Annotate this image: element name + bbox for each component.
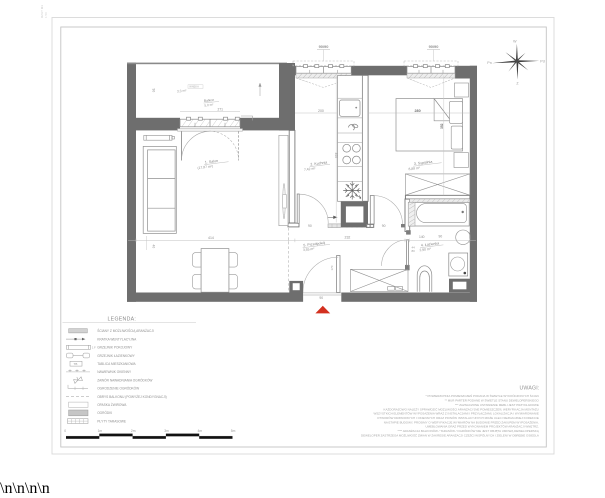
svg-text:1:50: 1:50 <box>44 12 48 18</box>
svg-text:UMEBLOWANIA ORAZ PRZED WYKONAN: UMEBLOWANIA ORAZ PRZED WYKONANIEM PROJEK… <box>425 424 539 429</box>
svg-text:*** ZAZNACZONE USTAWIENIE MEBL: *** ZAZNACZONE USTAWIENIE MEBLI JEST PRZ… <box>455 403 539 407</box>
svg-text:140: 140 <box>419 235 425 239</box>
svg-text:Pn: Pn <box>487 61 491 65</box>
svg-text:DEWELOPER ZASTRZEGA MOŻLIWOŚĆ: DEWELOPER ZASTRZEGA MOŻLIWOŚĆ ZMIAN W ZA… <box>361 432 539 437</box>
svg-text:0: 0 <box>64 429 66 433</box>
svg-text:WNĘKA: WNĘKA <box>189 85 199 89</box>
svg-text:W: W <box>513 40 517 44</box>
svg-text:NA ETAPIE BUDOWY, PROSIMY O WE: NA ETAPIE BUDOWY, PROSIMY O WERYFIKACJĘ … <box>384 419 539 424</box>
svg-text:90: 90 <box>308 224 312 228</box>
svg-text:414: 414 <box>208 236 214 240</box>
svg-text:UWAGI:: UWAGI: <box>519 385 539 391</box>
svg-text:KRATKA WENTYLACYJNA: KRATKA WENTYLACYJNA <box>97 337 137 341</box>
svg-text:5m: 5m <box>231 429 236 433</box>
svg-text:OBRYS BALKONU (POWYŻEJ KONDYGN: OBRYS BALKONU (POWYŻEJ KONDYGNACJI) <box>97 394 167 399</box>
svg-text:170: 170 <box>330 265 334 270</box>
svg-text:1m: 1m <box>98 429 103 433</box>
svg-text:4m: 4m <box>198 429 203 433</box>
svg-text:OGRODZENIE OGRÓDKÓW: OGRODZENIE OGRÓDKÓW <box>97 386 139 391</box>
svg-text:PŁYTY TARASOWE: PŁYTY TARASOWE <box>97 419 126 423</box>
svg-text:TB: TB <box>74 362 78 366</box>
svg-text:90/90: 90/90 <box>429 44 439 49</box>
svg-text:ZAWÓR NAWADNIANIA OGRÓDKÓW: ZAWÓR NAWADNIANIA OGRÓDKÓW <box>97 377 152 382</box>
svg-text:400: 400 <box>334 153 338 159</box>
svg-text:1 F: 1 F <box>92 346 96 350</box>
svg-text:3m: 3m <box>164 429 169 433</box>
svg-text:GRZEJNIK ŁAZIENKOWY: GRZEJNIK ŁAZIENKOWY <box>97 354 135 358</box>
svg-text:90: 90 <box>382 224 386 228</box>
svg-text:TABLICA MIESZKANIOWA: TABLICA MIESZKANIOWA <box>97 362 136 366</box>
svg-text:NAWIEWNIK OKIENNY: NAWIEWNIK OKIENNY <box>97 370 132 374</box>
svg-text:ŚCIANY Z MOŻLIWOŚCIĄ ARANŻACJI: ŚCIANY Z MOŻLIWOŚCIĄ ARANŻACJI <box>97 328 154 333</box>
svg-text:OTWORÓW DRZWIOWYCH I OKIENNYCH: OTWORÓW DRZWIOWYCH I OKIENNYCH ORAZ PION… <box>377 415 539 420</box>
svg-text:LEGENDA:: LEGENDA: <box>108 317 137 323</box>
svg-text:OGRÓDKI: OGRÓDKI <box>97 410 112 415</box>
svg-text:WSZYSTKICH ELEMENTÓW WYPOSAŻEN: WSZYSTKICH ELEMENTÓW WYPOSAŻENIA WRAZ Z … <box>373 411 538 416</box>
svg-text:200: 200 <box>318 109 324 113</box>
svg-text:271: 271 <box>218 108 224 112</box>
svg-text:90: 90 <box>152 89 156 93</box>
svg-text:* POWIERZCHNIA POMIESZCZEŃ POD: * POWIERZCHNIA POMIESZCZEŃ PODANA W ŚWIE… <box>426 393 539 398</box>
svg-text:40: 40 <box>152 245 156 249</box>
svg-text:**** ARANŻACJA BALKONÓW / TARA: **** ARANŻACJA BALKONÓW / TARASÓW / OGRÓ… <box>398 428 539 433</box>
svg-text:90: 90 <box>439 235 443 239</box>
svg-text:90: 90 <box>319 296 323 300</box>
svg-text:90/90: 90/90 <box>319 44 329 49</box>
svg-text:KAŻDORAZOWO NALEŻY SPRAWDZIĆ M: KAŻDORAZOWO NALEŻY SPRAWDZIĆ MOŻLIWOŚCI … <box>384 406 539 411</box>
svg-text:OPASKA ŻWIROWA: OPASKA ŻWIROWA <box>97 402 127 407</box>
svg-text:** MUR PARTER PODANE W ŚWIETLE: ** MUR PARTER PODANE W ŚWIETLE STANU DEW… <box>445 398 540 403</box>
svg-text:80: 80 <box>412 249 416 253</box>
svg-text:280: 280 <box>415 109 421 113</box>
svg-text:352: 352 <box>440 123 444 129</box>
svg-text:Pd: Pd <box>540 59 544 63</box>
svg-text:GRZEJNIK POKOJOWY: GRZEJNIK POKOJOWY <box>97 346 133 350</box>
svg-text:2m: 2m <box>131 429 136 433</box>
svg-text:232: 232 <box>345 235 351 239</box>
